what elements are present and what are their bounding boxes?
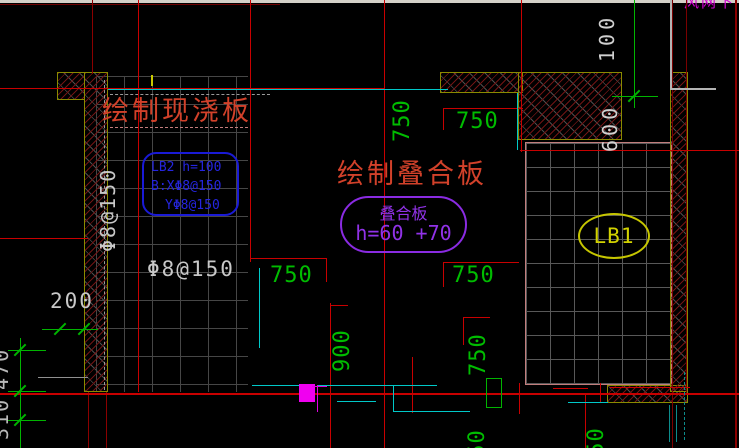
- dim-text-750-bottomright[interactable]: 750: [586, 427, 608, 448]
- dim-line: [8, 350, 46, 351]
- dim-bracket-line: [463, 317, 464, 345]
- rebar-text-horizontal[interactable]: Φ8@150: [147, 259, 235, 280]
- slab-edge-line: [108, 89, 448, 90]
- dim-bracket-line: [250, 258, 326, 259]
- dim-text-750-top[interactable]: 750: [392, 99, 414, 142]
- lb1-label: LB1: [594, 224, 635, 248]
- dim-bracket-line: [443, 262, 444, 287]
- slab-edge-line: [517, 93, 518, 150]
- slab-boundary-dashed-line: [110, 127, 248, 128]
- dim-bracket-line: [326, 258, 327, 282]
- axis-line: [330, 303, 331, 448]
- slab-edge-line: [259, 268, 260, 348]
- green-opening-rect[interactable]: [486, 378, 502, 408]
- axis-line: [0, 238, 88, 239]
- axis-line: [610, 387, 690, 388]
- dim-text-310[interactable]: 310: [0, 398, 11, 440]
- wall-line: [672, 0, 673, 448]
- slab-tag-line3: YΦ8@150: [151, 197, 233, 216]
- dim-line: [8, 420, 46, 421]
- cad-canvas[interactable]: 风网下: [0, 0, 739, 448]
- composite-tag-title: 叠合板: [379, 205, 427, 223]
- wall-line: [106, 392, 107, 448]
- dim-text-750-rightmid[interactable]: 750: [468, 333, 490, 376]
- wall-line: [686, 0, 687, 392]
- magenta-line: [317, 385, 318, 412]
- reference-line: [670, 88, 716, 90]
- wall-hatch-topmid[interactable]: [440, 72, 523, 93]
- wall-centerline: [676, 405, 677, 442]
- slab-edge-line: [252, 385, 299, 386]
- dim-text-750-midleft[interactable]: 750: [270, 265, 313, 287]
- axis-line: [521, 0, 522, 152]
- dim-text-750-topright[interactable]: 750: [456, 111, 499, 133]
- wall-centerline-dashed: [684, 372, 685, 440]
- dim-text-900[interactable]: 900: [332, 329, 354, 372]
- window-top-strip: [0, 0, 739, 3]
- dim-text-750-midright[interactable]: 750: [452, 265, 495, 287]
- slab-edge-line: [393, 411, 470, 412]
- axis-line: [520, 150, 739, 151]
- dim-line: [8, 391, 46, 392]
- dim-text-750-bottomcenter[interactable]: 750: [467, 429, 489, 448]
- wall-line: [735, 0, 737, 448]
- reference-line: [38, 377, 88, 378]
- yellow-tick: [151, 75, 153, 86]
- wall-line: [88, 392, 89, 448]
- rebar-text-vertical[interactable]: Φ8@150: [98, 168, 118, 252]
- slab-tag-line1: LB2 h=100: [151, 159, 233, 178]
- dim-bracket-line: [443, 108, 444, 130]
- toolbar-edge-line: [0, 4, 280, 5]
- wall-hatch-topleft-corner[interactable]: [57, 72, 85, 100]
- dim-text-100[interactable]: 100: [597, 14, 617, 62]
- right-slab-grid[interactable]: [525, 142, 672, 385]
- axis-line: [553, 388, 588, 389]
- axis-line: [92, 0, 93, 74]
- label-draw-composite-slab[interactable]: 绘制叠合板: [337, 161, 487, 188]
- dim-text-600[interactable]: 600: [600, 104, 620, 152]
- reference-line: [670, 0, 672, 88]
- slab-edge-line: [393, 385, 394, 411]
- slab-edge-dashed-line: [110, 94, 270, 95]
- slab-tag-line2: B:XΦ8@150: [151, 178, 233, 197]
- lb1-ellipse-tag[interactable]: LB1: [578, 213, 650, 259]
- main-axis-line: [0, 393, 739, 395]
- composite-slab-tag[interactable]: 叠合板 h=60 +70: [340, 196, 467, 253]
- slab-edge-line: [318, 385, 437, 386]
- label-draw-cast-slab[interactable]: 绘制现浇板: [102, 98, 252, 125]
- dim-line: [20, 338, 21, 448]
- dim-text-470[interactable]: 470: [0, 348, 11, 390]
- dim-bracket-line: [330, 305, 348, 306]
- dim-text-200[interactable]: 200: [50, 291, 94, 312]
- dim-line: [42, 329, 98, 330]
- axis-line: [519, 383, 520, 414]
- slab-edge-line: [568, 402, 608, 403]
- magenta-line: [312, 386, 327, 387]
- clipped-command-text: 风网下: [684, 0, 738, 12]
- wall-centerline: [669, 405, 670, 442]
- axis-line: [250, 0, 251, 262]
- dim-bracket-line: [463, 317, 490, 318]
- slab-tag-lb2[interactable]: LB2 h=100 B:XΦ8@150 YΦ8@150: [142, 152, 239, 216]
- axis-line: [138, 0, 139, 392]
- slab-edge-line: [337, 401, 376, 402]
- composite-tag-thickness: h=60 +70: [355, 222, 451, 244]
